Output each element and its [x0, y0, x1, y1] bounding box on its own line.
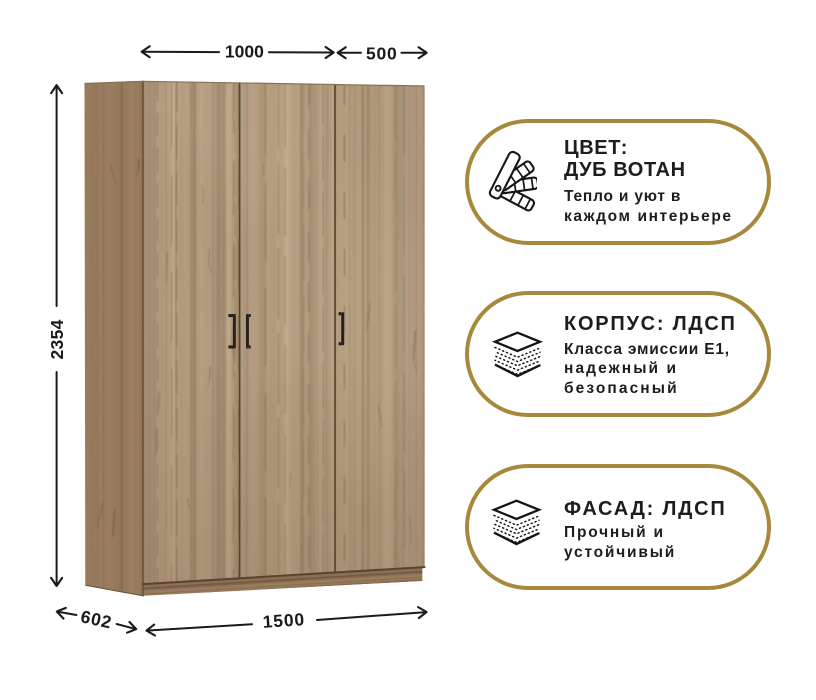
svg-text:1500: 1500 — [262, 609, 305, 632]
svg-text:602: 602 — [79, 606, 114, 632]
svg-text:2354: 2354 — [47, 319, 67, 359]
svg-text:500: 500 — [366, 43, 398, 63]
svg-text:1000: 1000 — [225, 42, 264, 62]
